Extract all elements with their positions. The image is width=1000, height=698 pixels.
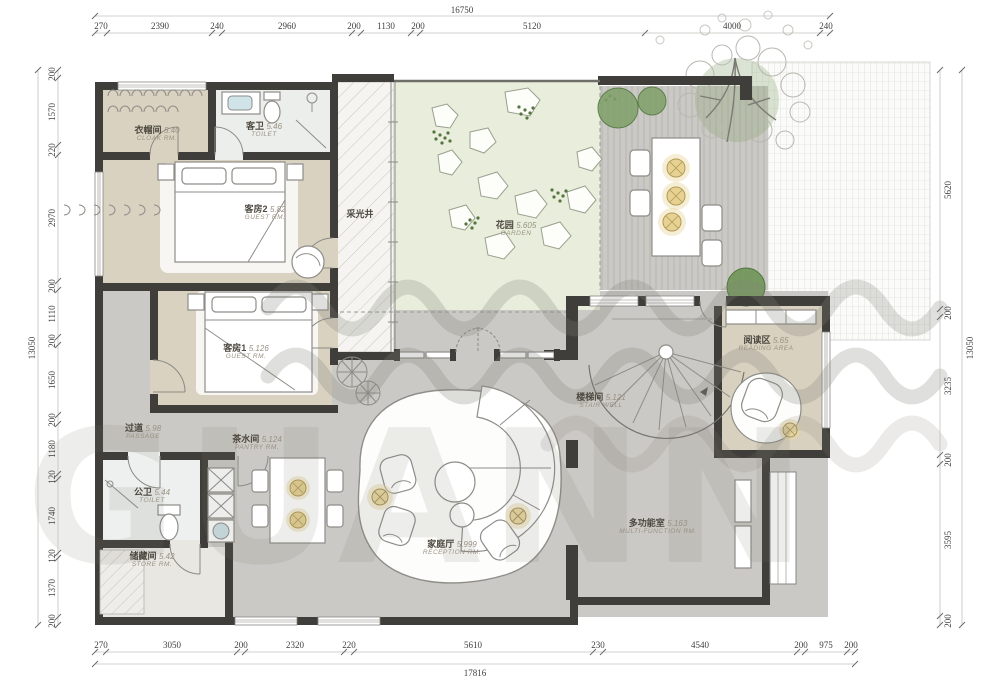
dim-label: 200	[234, 640, 248, 650]
dim-label: 3050	[163, 640, 182, 650]
dim-right-total: 13050	[965, 336, 975, 359]
dim-label: 200	[411, 21, 425, 31]
dim-label: 1570	[47, 103, 57, 122]
window	[95, 172, 103, 276]
window	[235, 617, 297, 625]
dim-label: 1370	[47, 579, 57, 598]
dim-label: 240	[210, 21, 224, 31]
dim-label: 2320	[286, 640, 305, 650]
window	[118, 82, 206, 90]
guest-room1-furniture	[188, 292, 328, 392]
dim-label: 230	[591, 640, 605, 650]
dim-label: 1130	[377, 21, 395, 31]
dim-label: 4000	[723, 21, 742, 31]
dim-top-total: 16750	[451, 5, 474, 15]
dim-label: 4540	[691, 640, 710, 650]
dim-label: 200	[47, 413, 57, 427]
floor-plan-canvas: GUANN 16750 270 2390 240 2960 200 1130 2…	[0, 0, 1000, 698]
dim-label: 200	[943, 614, 953, 628]
dim-label: 1650	[47, 371, 57, 390]
dim-label: 200	[844, 640, 858, 650]
dim-label: 5610	[464, 640, 483, 650]
dim-label: 1110	[47, 305, 57, 323]
dim-label: 1180	[47, 440, 57, 458]
dim-label: 5120	[523, 21, 542, 31]
dim-label: 2390	[151, 21, 170, 31]
dim-label: 3235	[943, 377, 953, 396]
watermark-text: GUANN	[25, 390, 814, 606]
dim-label: 200	[943, 453, 953, 467]
dim-label: 220	[342, 640, 356, 650]
tree-icon	[598, 88, 638, 128]
dim-label: 200	[943, 306, 953, 320]
plate-symbols	[658, 154, 690, 236]
dim-label: 200	[47, 334, 57, 348]
dim-label: 200	[794, 640, 808, 650]
dim-label: 200	[47, 67, 57, 81]
dim-label: 2970	[47, 209, 57, 228]
dim-label: 120	[47, 549, 57, 563]
dim-label: 5620	[943, 181, 953, 200]
dim-label: 270	[94, 640, 108, 650]
dim-label: 120	[47, 470, 57, 484]
dim-label: 2960	[278, 21, 297, 31]
dim-left-total: 13050	[27, 336, 37, 359]
floor-plan-drawing: GUANN 16750 270 2390 240 2960 200 1130 2…	[0, 0, 1000, 698]
tree-icon	[638, 87, 666, 115]
dim-label: 240	[819, 21, 833, 31]
cloak-room-floor	[103, 90, 210, 154]
dim-label: 220	[47, 143, 57, 157]
window	[318, 617, 380, 625]
dim-label: 270	[94, 21, 108, 31]
dim-label: 975	[819, 640, 833, 650]
dim-bottom-total: 17816	[464, 668, 487, 678]
dim-label: 1740	[47, 507, 57, 526]
dim-label: 200	[347, 21, 361, 31]
dim-label: 200	[47, 279, 57, 293]
dim-label: 3595	[943, 531, 953, 550]
dim-label: 200	[47, 614, 57, 628]
